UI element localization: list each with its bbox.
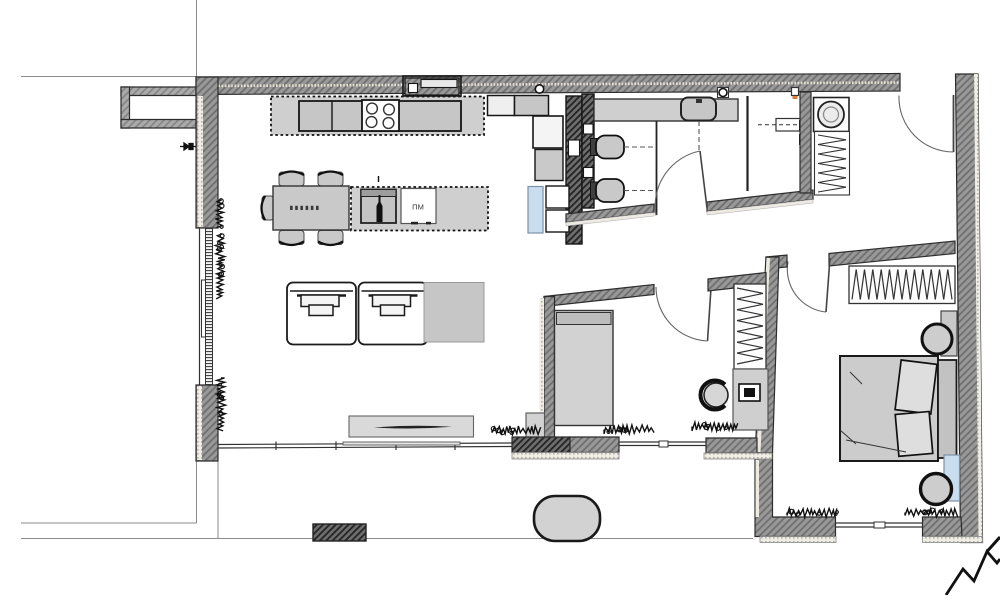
svg-text:ПМ: ПМ <box>412 203 424 212</box>
